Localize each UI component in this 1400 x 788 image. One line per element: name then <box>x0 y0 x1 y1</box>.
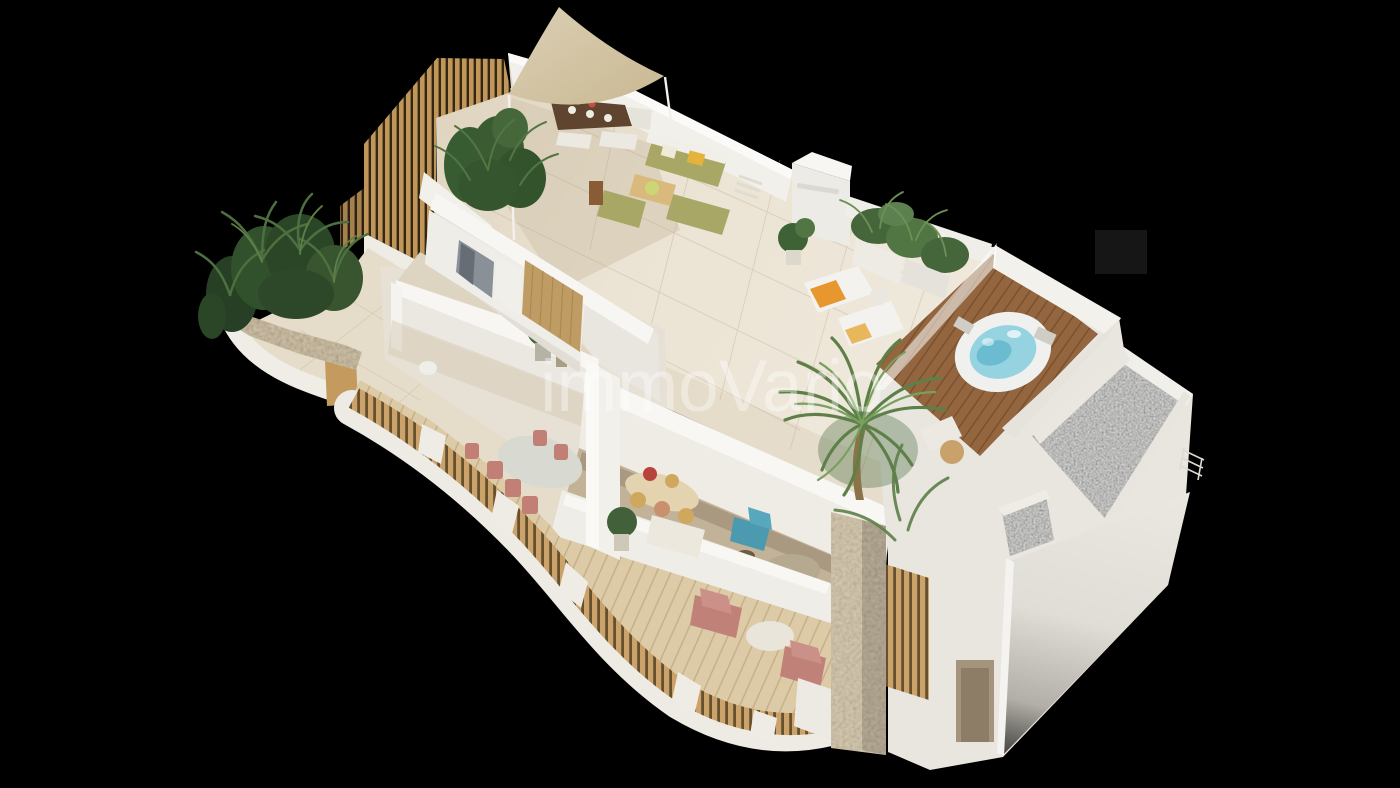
svg-text:immoVario: immoVario <box>540 346 883 427</box>
